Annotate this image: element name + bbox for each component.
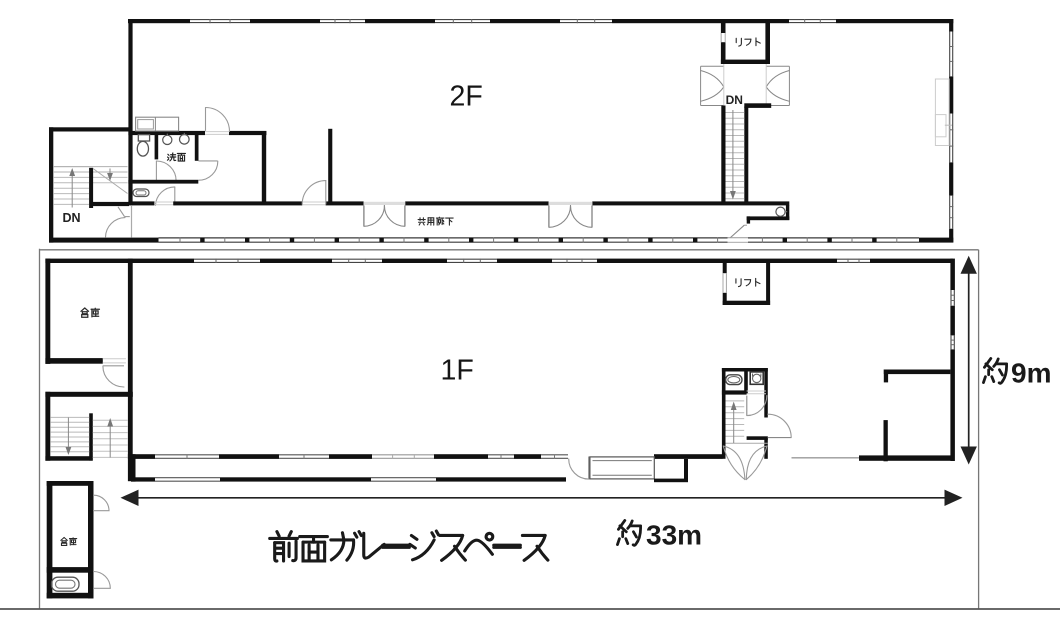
svg-text:33m: 33m	[646, 520, 702, 551]
svg-text:2F: 2F	[450, 81, 483, 113]
svg-text:DN: DN	[726, 93, 743, 107]
svg-text:DN: DN	[63, 211, 81, 225]
svg-text:1F: 1F	[441, 355, 474, 387]
svg-text:9m: 9m	[1011, 358, 1051, 389]
